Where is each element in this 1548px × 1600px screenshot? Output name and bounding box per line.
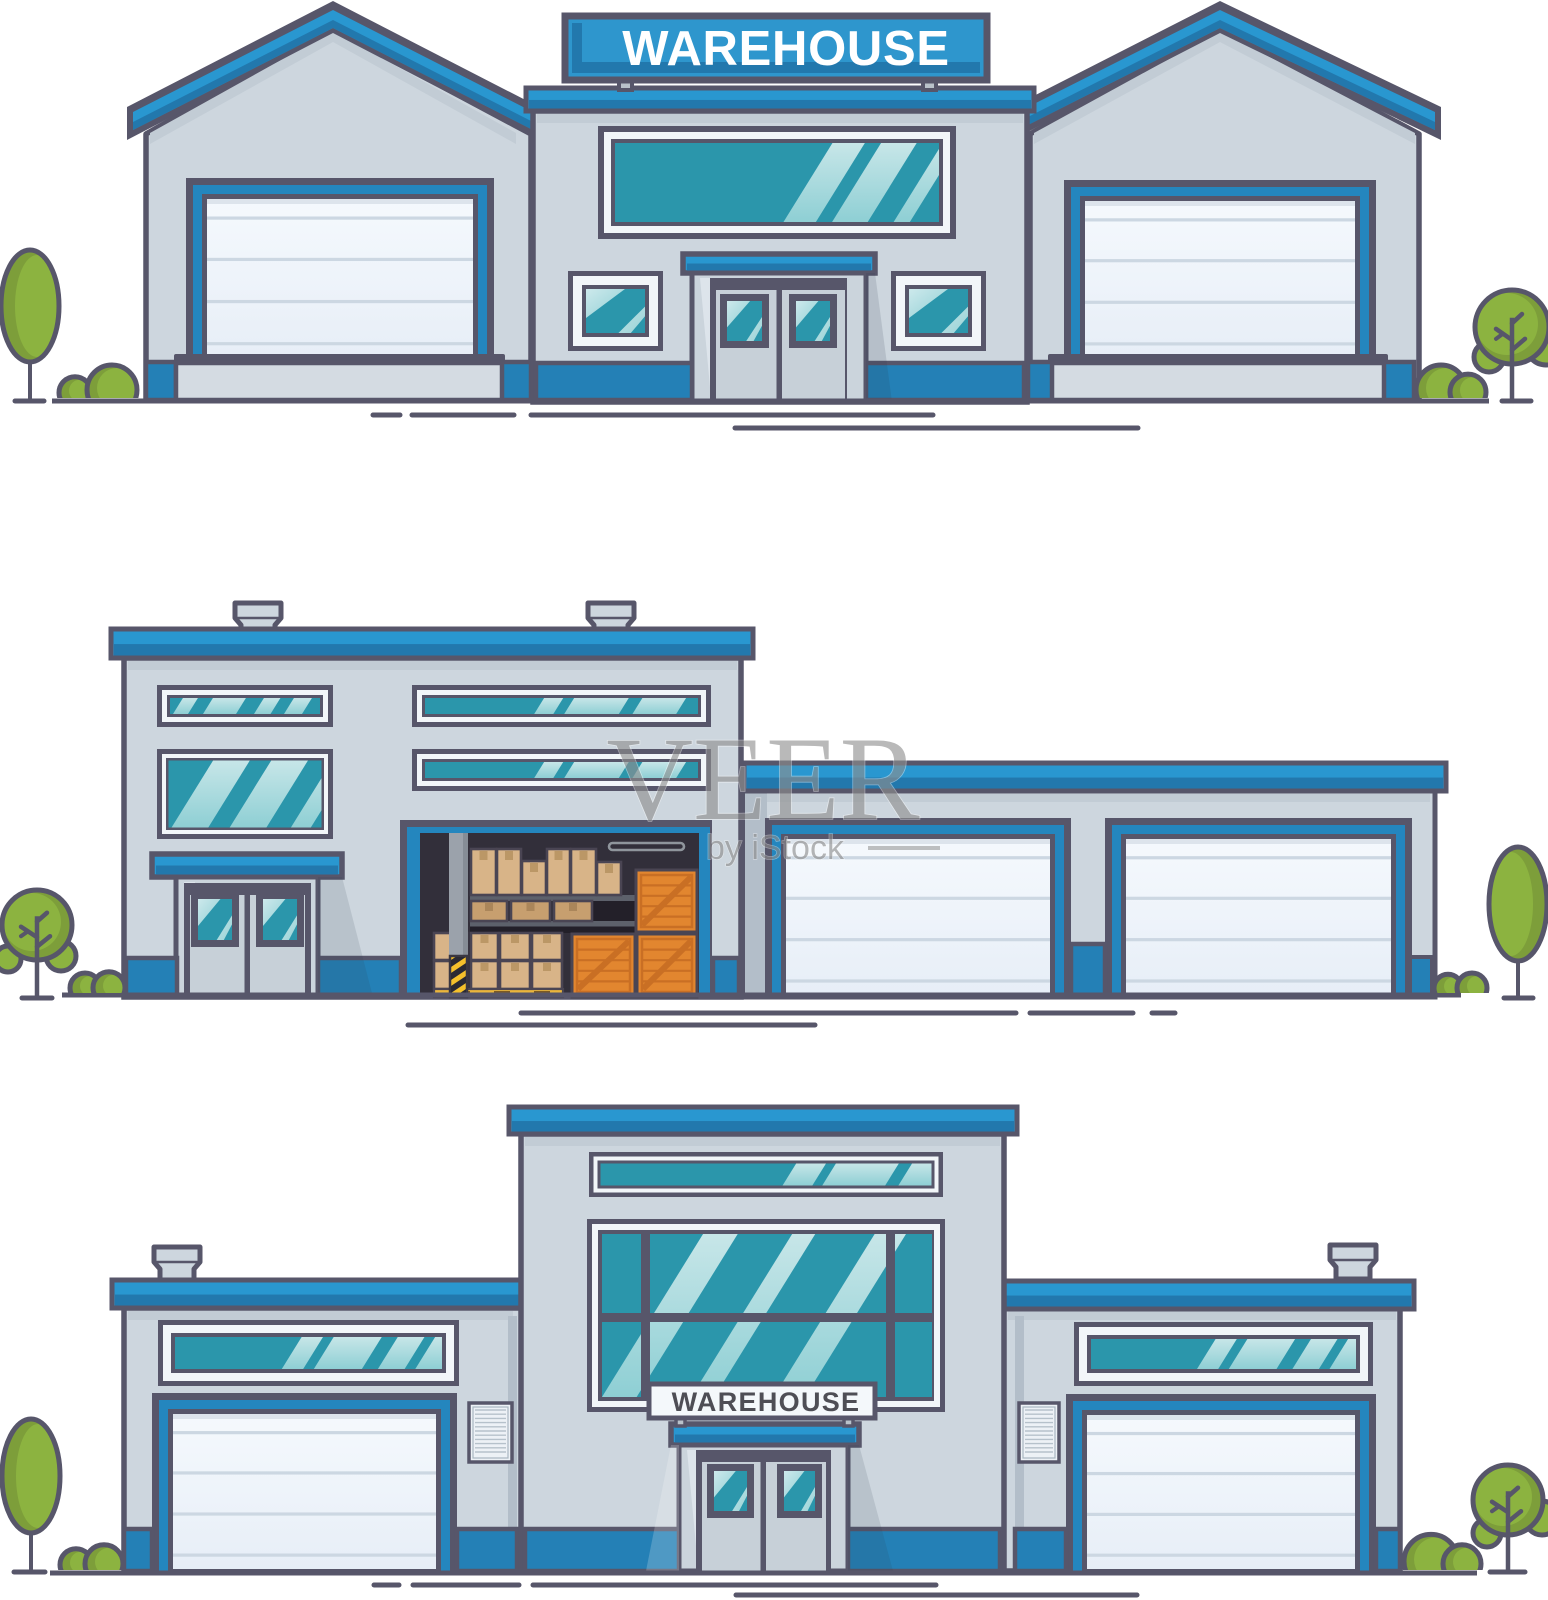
svg-text:VEER: VEER	[606, 712, 919, 845]
svg-text:WAREHOUSE: WAREHOUSE	[622, 22, 950, 76]
svg-text:by iStock: by iStock	[706, 829, 845, 867]
svg-text:WAREHOUSE: WAREHOUSE	[672, 1387, 861, 1417]
